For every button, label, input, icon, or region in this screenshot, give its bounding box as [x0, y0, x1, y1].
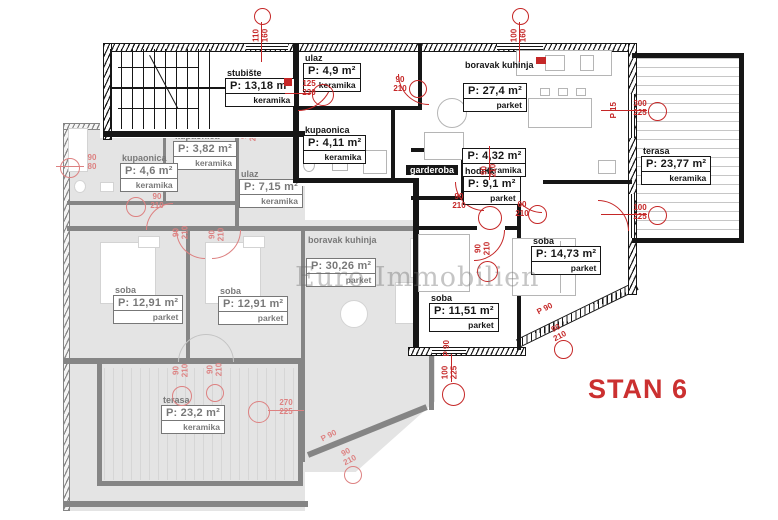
room-floor: parket — [464, 99, 526, 111]
wall — [103, 131, 305, 137]
dimension-circle — [478, 206, 502, 230]
room-name: soba — [218, 286, 288, 296]
toilet — [74, 180, 86, 193]
desk — [138, 236, 160, 248]
terrace-wall — [97, 481, 303, 486]
dimension-marker: 90 210 — [207, 359, 224, 381]
stool — [540, 88, 550, 96]
terrace-wall — [739, 53, 744, 243]
room-label: boravak kuhinja P: 27,4 m² parket — [463, 60, 534, 113]
room-label: terasa P: 23,77 m² keramika — [641, 146, 711, 186]
sink — [100, 182, 114, 192]
dimension-circle — [528, 205, 547, 224]
room-label: kupaonica P: 4,6 m² keramika — [120, 153, 178, 193]
dimension-circle — [206, 384, 224, 402]
leader-line — [489, 146, 490, 180]
leader-line — [285, 93, 311, 94]
room-label: soba P: 12,91 m² parket — [218, 286, 288, 326]
kitchen-sink — [580, 55, 594, 71]
room-label: soba P: 11,51 m² parket — [429, 293, 499, 333]
unit-title: STAN 6 — [588, 374, 688, 405]
terrace-wall — [298, 362, 303, 486]
room-name: stubište — [225, 68, 295, 78]
dimension-circle — [648, 206, 667, 225]
wall — [63, 501, 308, 507]
dimension-marker: 270 225 — [274, 399, 298, 416]
wall — [293, 43, 299, 183]
wall — [67, 226, 431, 231]
dimension-circle — [248, 401, 270, 423]
leader-line — [519, 22, 520, 62]
stove — [545, 55, 565, 71]
room-area: P: 4,9 m² — [304, 64, 360, 79]
stool — [576, 88, 586, 96]
room-area: P: 12,91 m² — [114, 296, 182, 311]
room-area: P: 11,51 m² — [430, 304, 498, 319]
dimension-circle — [312, 84, 334, 106]
door-hinge-mark — [536, 57, 546, 64]
room-floor: keramika — [642, 172, 710, 184]
room-area: P: 3,82 m² — [174, 142, 236, 157]
exterior-wall — [408, 347, 526, 356]
room-name: boravak kuhinja — [463, 60, 534, 70]
room-floor: keramika — [304, 151, 365, 163]
shower — [363, 150, 387, 174]
leader-line — [451, 354, 452, 382]
terrace-wall — [632, 238, 744, 243]
room-area: P: 4,6 m² — [121, 164, 177, 179]
room-floor: keramika — [121, 179, 177, 191]
room-label: soba P: 14,73 m² parket — [531, 236, 601, 276]
wall — [63, 123, 70, 511]
dimension-marker: P 15 — [610, 98, 619, 122]
dimension-marker: 90 210 — [209, 224, 226, 246]
room-area: P: 12,91 m² — [219, 297, 287, 312]
room-area: P: 14,73 m² — [532, 247, 600, 262]
dimension-circle — [60, 158, 80, 178]
desk — [243, 236, 265, 248]
room-floor: parket — [114, 311, 182, 323]
room-name: boravak kuhinja — [306, 235, 377, 245]
room-name: garderoba — [406, 165, 458, 175]
room-name: terasa — [641, 146, 711, 156]
room-name: kupaonica — [303, 125, 366, 135]
wall — [293, 178, 419, 183]
dimension-marker: 90 210 — [475, 238, 492, 260]
dimension-circle — [126, 197, 146, 217]
dimension-marker: 90 80 — [82, 154, 102, 171]
dimension-circle — [344, 466, 362, 484]
wall — [543, 180, 632, 184]
door-hinge-mark — [284, 78, 292, 86]
dimension-circle — [409, 80, 427, 98]
terrace-wall — [97, 362, 102, 486]
leader-line — [268, 410, 304, 411]
dimension-marker: 90 210 — [146, 193, 168, 210]
dimension-circle — [172, 386, 192, 406]
room-name: soba — [113, 285, 183, 295]
dimension-circle — [648, 102, 667, 121]
table — [340, 300, 368, 328]
dimension-marker: P 90 — [443, 335, 452, 361]
leader-line — [261, 22, 262, 62]
dimension-circle — [254, 8, 271, 25]
leader-line — [601, 214, 647, 215]
dimension-marker: 90 210 — [173, 360, 190, 382]
floor-plan-canvas: kupaonica P: 3,82 m² keramika kupaonica … — [0, 0, 778, 520]
room-floor: keramika — [162, 421, 224, 433]
wall — [391, 106, 395, 182]
leader-line — [56, 166, 84, 167]
cabinet — [598, 160, 616, 174]
dimension-marker: 90 210 — [448, 193, 470, 210]
wall — [413, 226, 477, 230]
room-floor: parket — [532, 262, 600, 274]
room-label: kupaonica P: 4,11 m² keramika — [303, 125, 366, 165]
room-floor: keramika — [226, 94, 294, 106]
room-area: P: 23,2 m² — [162, 406, 224, 421]
stool — [558, 88, 568, 96]
room-label: soba P: 12,91 m² parket — [113, 285, 183, 325]
room-floor: parket — [430, 319, 498, 331]
dimension-circle — [512, 8, 529, 25]
room-floor: keramika — [240, 195, 302, 207]
stair-arrow — [118, 108, 198, 109]
room-area: P: 27,4 m² — [464, 84, 526, 99]
room-label: stubište P: 13,18 m² keramika — [225, 68, 295, 108]
room-name: ulaz — [303, 53, 361, 63]
kitchen-island — [528, 98, 592, 128]
room-floor: keramika — [174, 157, 236, 169]
stair-arrow — [118, 67, 198, 68]
room-name: soba — [531, 236, 601, 246]
dimension-marker: 90 210 — [173, 222, 190, 244]
room-floor: parket — [219, 312, 287, 324]
staircase — [110, 49, 215, 129]
room-name: soba — [429, 293, 499, 303]
dimension-marker: 90 210 — [389, 76, 411, 93]
exterior-wall — [628, 43, 637, 295]
dimension-circle — [442, 383, 465, 406]
dimension-marker: 100 225 — [442, 361, 459, 385]
room-name: kupaonica — [120, 153, 178, 163]
room-area: P: 23,77 m² — [642, 157, 710, 172]
dimension-circle — [554, 340, 573, 359]
room-area: P: 4,11 m² — [304, 136, 365, 151]
watermark: Euro Immobilien — [295, 262, 540, 293]
